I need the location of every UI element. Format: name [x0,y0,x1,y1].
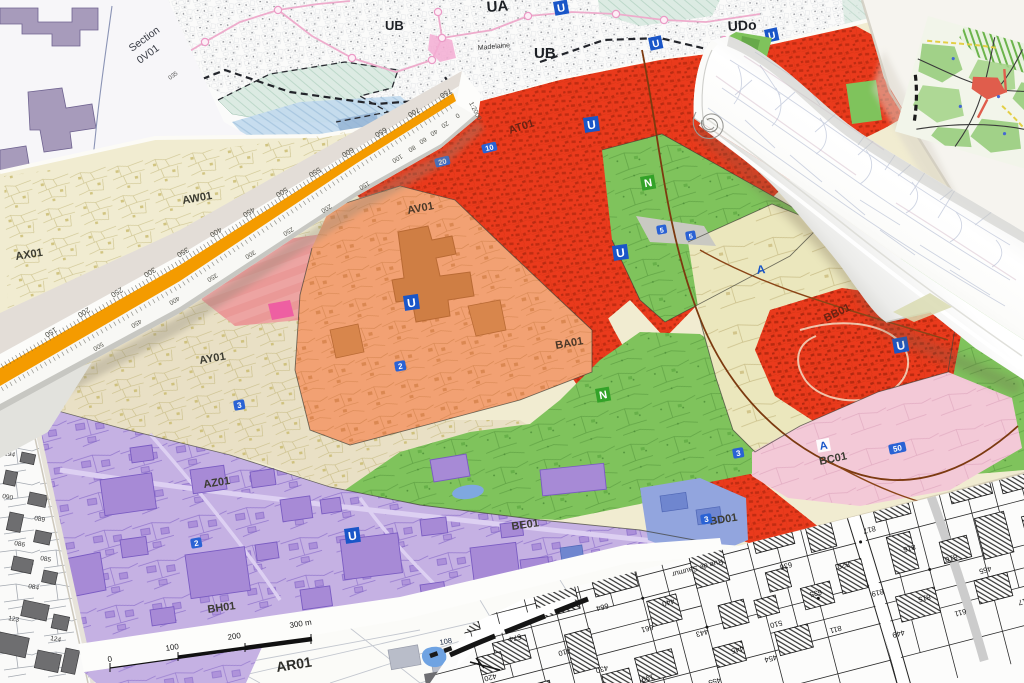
svg-text:UB: UB [534,45,556,62]
svg-text:UB: UB [385,18,404,33]
svg-text:UA: UA [486,0,509,16]
svg-text:UDo: UDo [727,17,757,34]
svg-text:A: A [756,262,766,277]
